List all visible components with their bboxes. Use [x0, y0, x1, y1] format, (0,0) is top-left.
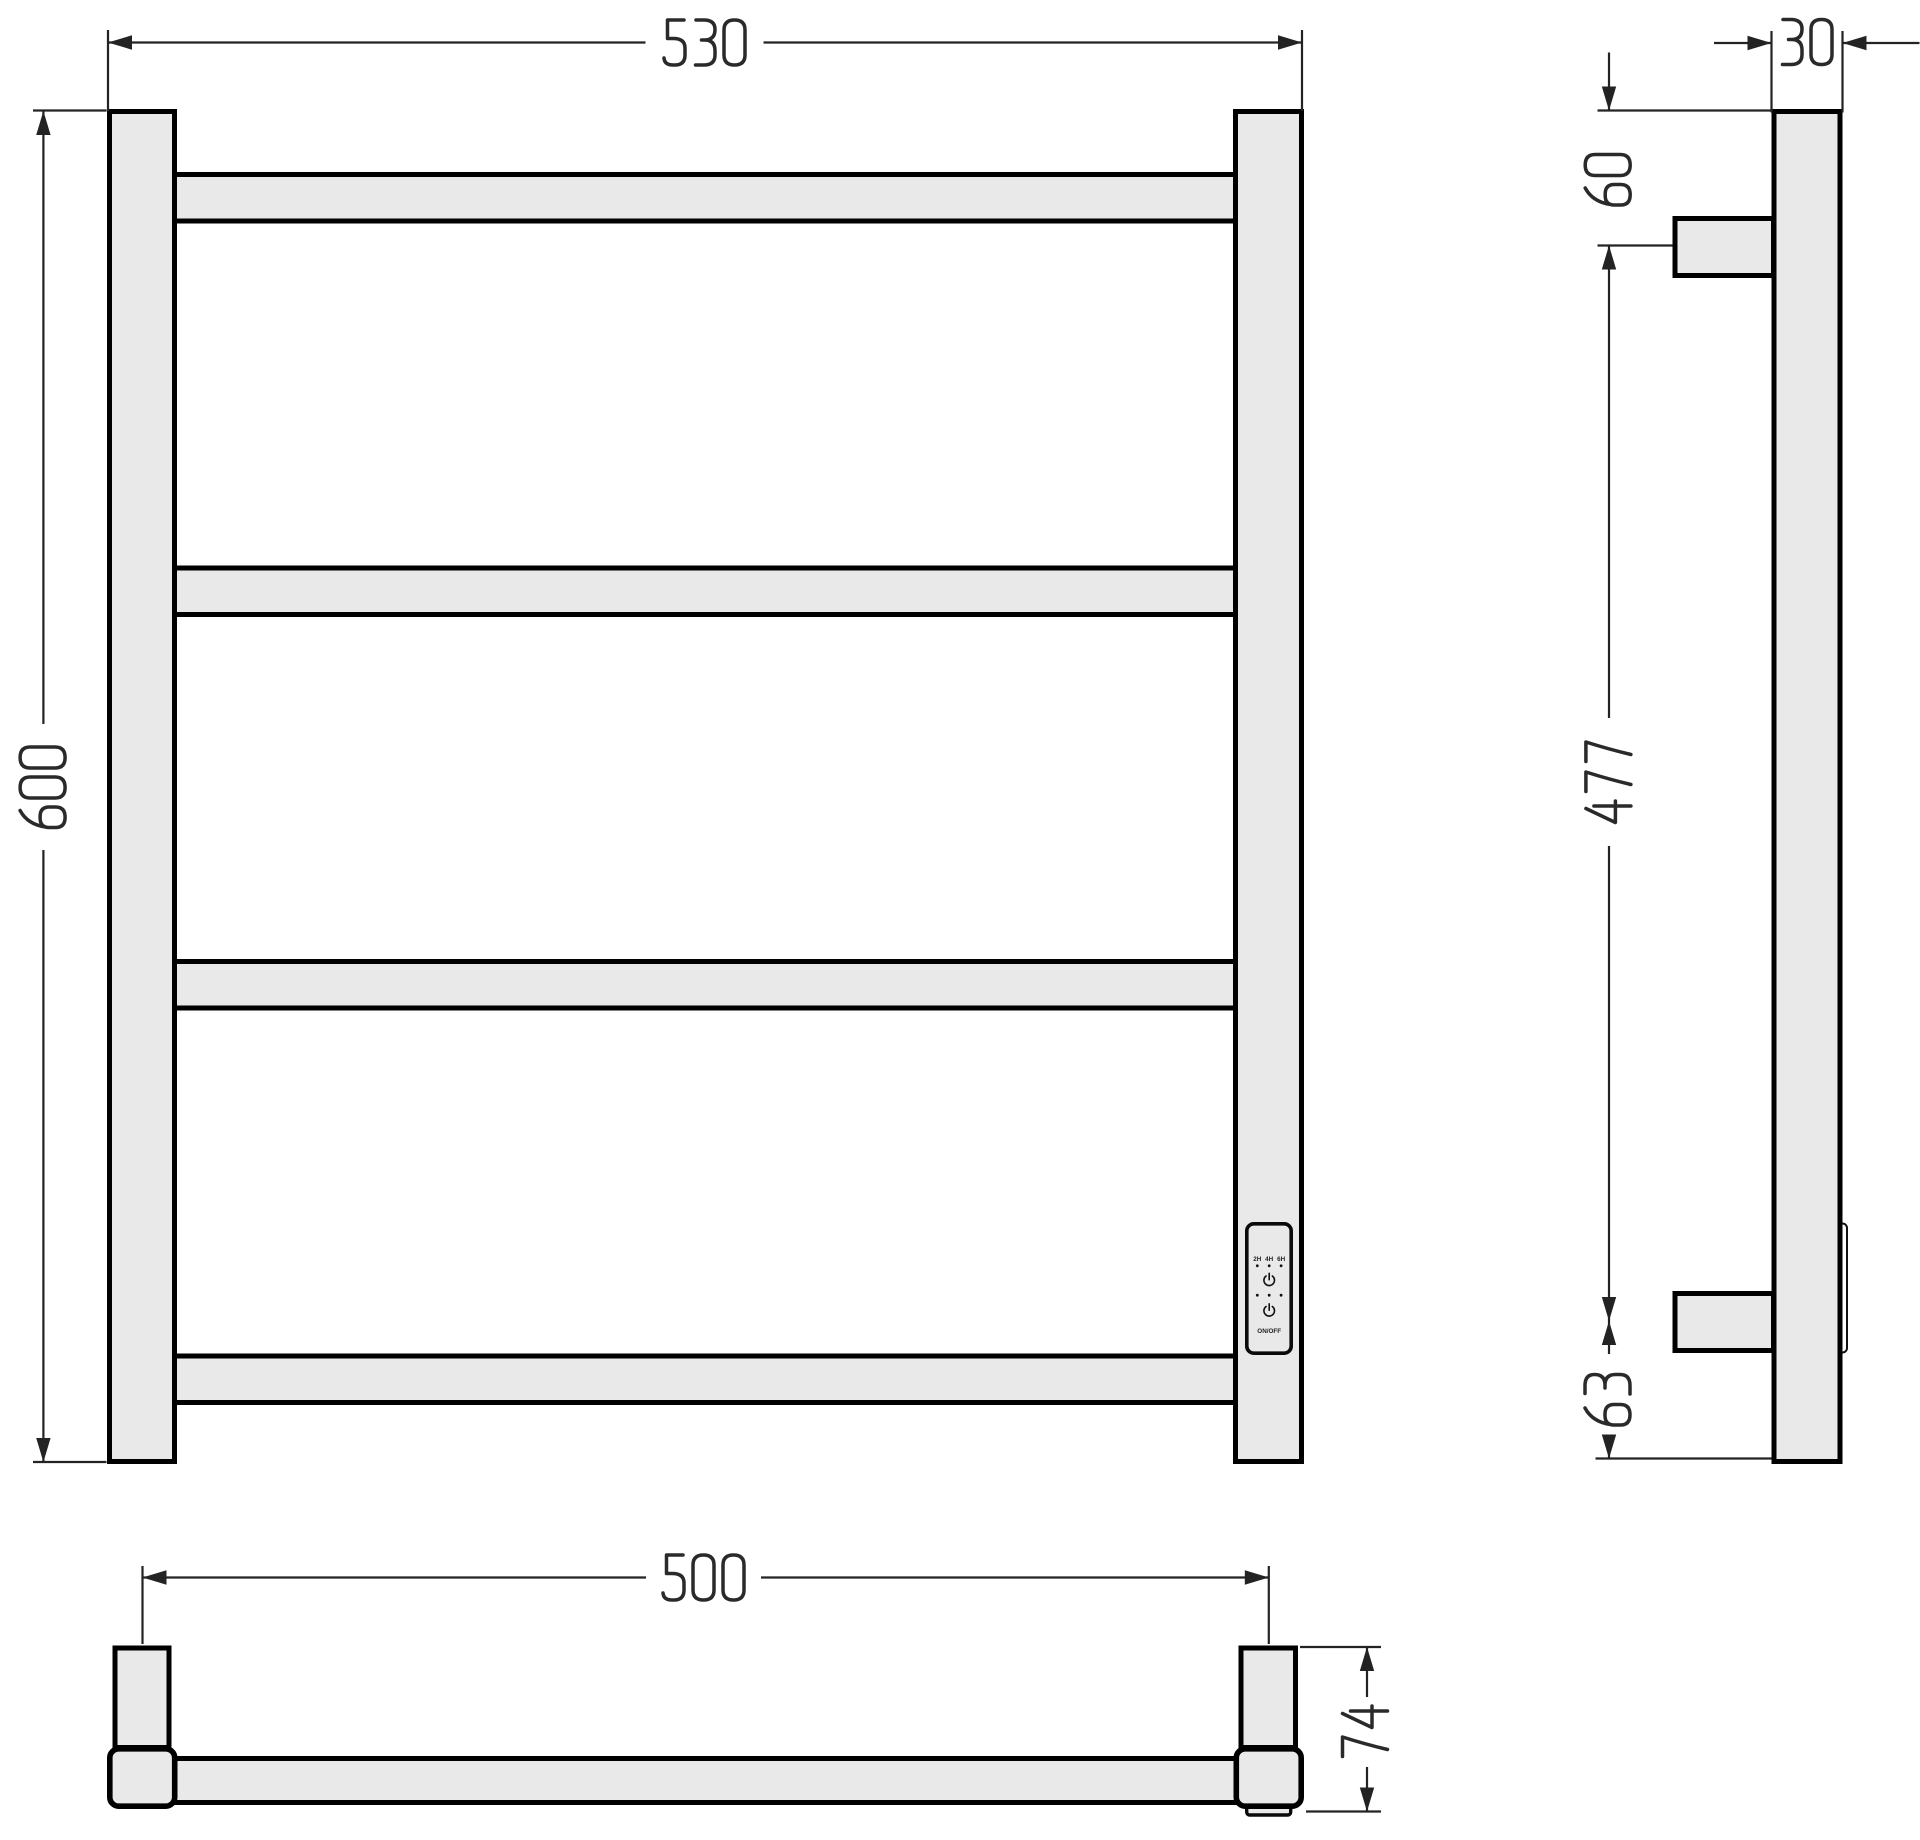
svg-text:4H: 4H — [1265, 1256, 1274, 1263]
svg-text:6H: 6H — [1277, 1256, 1286, 1263]
svg-text:ON/OFF: ON/OFF — [1257, 1328, 1281, 1335]
svg-text:2H: 2H — [1253, 1256, 1262, 1263]
